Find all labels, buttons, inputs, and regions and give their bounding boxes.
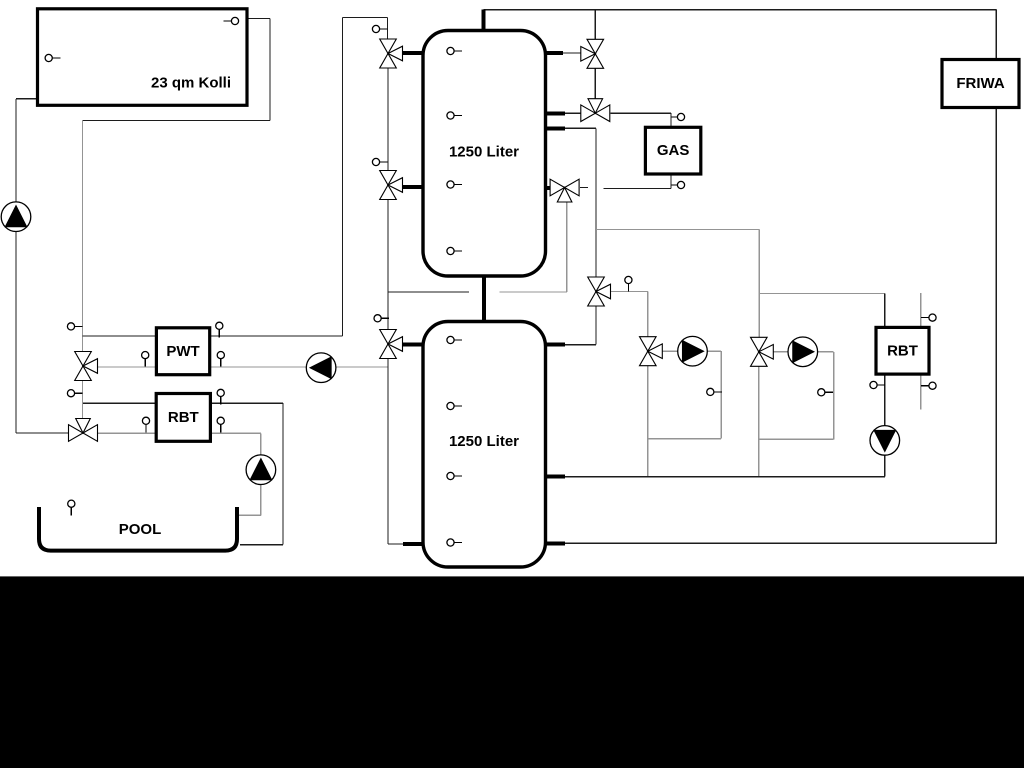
svg-text:RBT: RBT — [168, 409, 199, 426]
svg-text:PWT: PWT — [166, 343, 199, 360]
svg-text:1250 Liter: 1250 Liter — [449, 144, 519, 161]
svg-text:GAS: GAS — [657, 142, 690, 159]
svg-text:FRIWA: FRIWA — [956, 75, 1004, 92]
svg-text:1250 Liter: 1250 Liter — [449, 433, 519, 450]
svg-text:RBT: RBT — [887, 342, 918, 359]
svg-text:23 qm Kolli: 23 qm Kolli — [151, 75, 231, 92]
svg-text:POOL: POOL — [119, 521, 162, 538]
